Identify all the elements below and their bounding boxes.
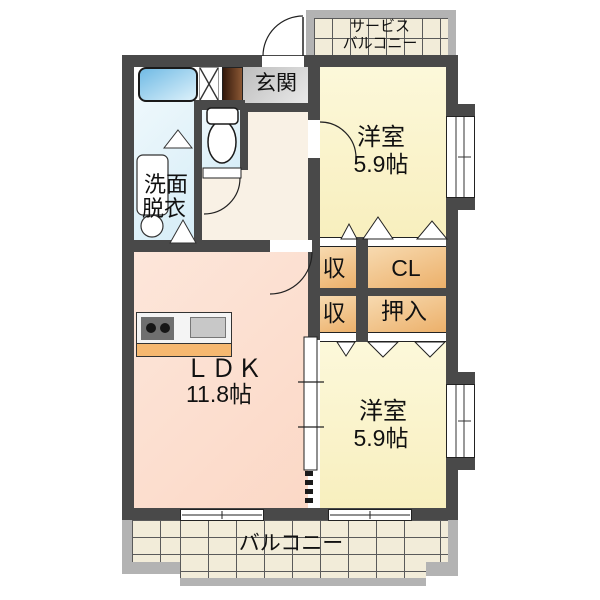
toilet-fixture	[207, 108, 238, 163]
folding-doors-bottom	[337, 342, 445, 357]
ldk-area: 11.8帖	[159, 381, 279, 408]
closet-lower-left-label: 収	[318, 300, 350, 326]
ldk-name: ＬＤＫ	[164, 355, 284, 384]
entrance-label: 玄関	[245, 72, 307, 96]
sliding-door-lines	[182, 511, 410, 519]
closet-upper-left-label: 収	[318, 255, 350, 281]
toilet-door-symbol	[203, 168, 241, 214]
folding-doors-top	[341, 217, 447, 239]
bedroom-bottom-name: 洋室	[333, 398, 433, 426]
bedroom-top-area: 5.9帖	[331, 151, 431, 178]
service-balcony-label-line1: サービス	[330, 18, 430, 36]
pipe-space-x-icon	[200, 68, 218, 100]
washroom-door-triangle	[170, 220, 196, 243]
bathtub	[139, 68, 197, 101]
floor-plan: サービス バルコニー 玄関 洋室 5.9帖 洗面 脱衣 収 CL 収 押入 ＬＤ…	[0, 0, 600, 600]
closet-upper-right-label: CL	[376, 255, 436, 281]
closet-lower-right-label: 押入	[374, 298, 434, 324]
washroom-label-line2: 脱衣	[135, 196, 193, 221]
balcony-label: バルコニー	[221, 532, 361, 556]
entrance-door-symbol	[263, 16, 303, 56]
service-balcony-label-line2: バルコニー	[330, 35, 430, 53]
bedroom-top-name: 洋室	[331, 124, 431, 152]
bathroom-door-triangle	[164, 130, 192, 148]
bedroom-bottom-area: 5.9帖	[331, 425, 431, 452]
sliding-partition	[298, 337, 324, 507]
washroom-label-line1: 洗面	[137, 172, 195, 197]
ldk-door-symbol	[270, 252, 312, 294]
window-pane-lines	[456, 117, 471, 457]
